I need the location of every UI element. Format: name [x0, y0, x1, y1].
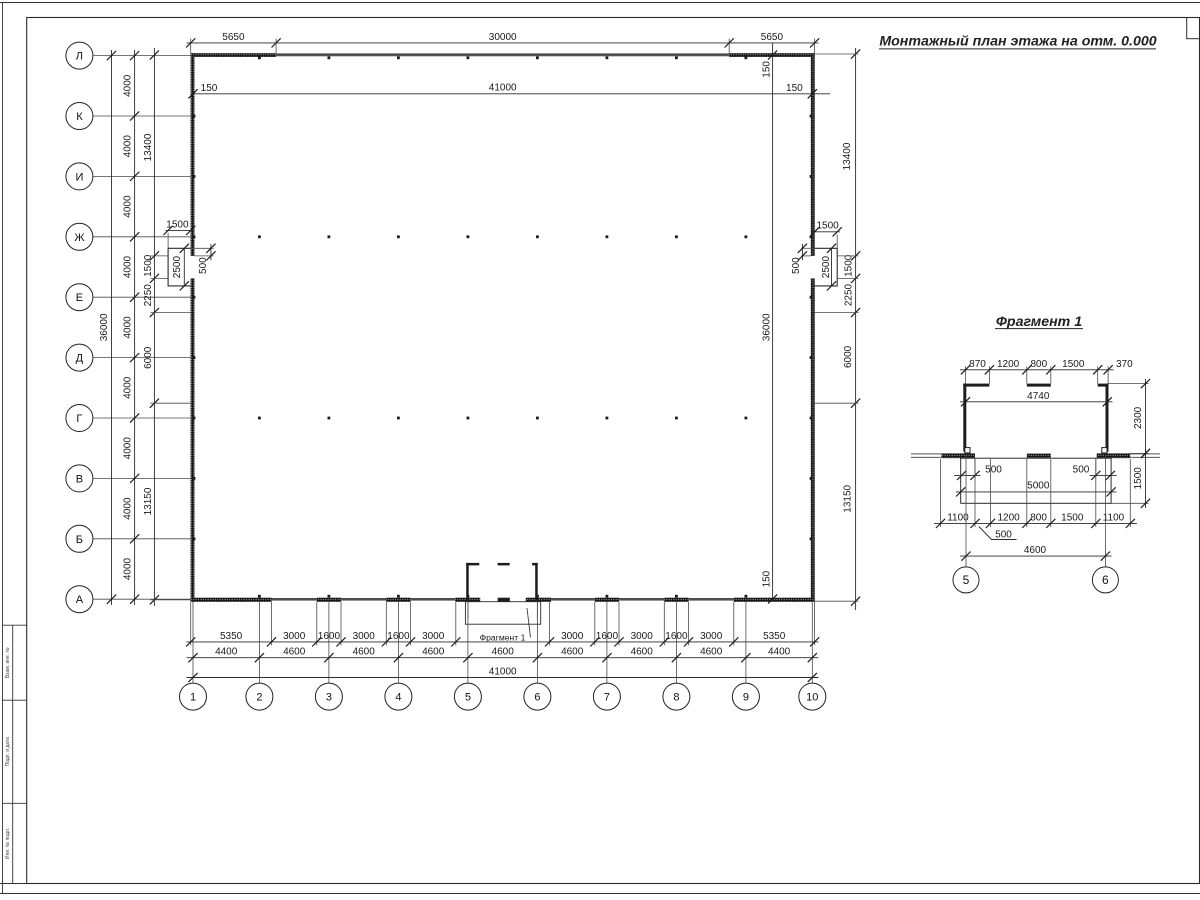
svg-text:2250: 2250: [143, 284, 154, 307]
svg-text:Фрагмент 1: Фрагмент 1: [996, 314, 1082, 330]
svg-text:150: 150: [786, 83, 803, 94]
svg-text:800: 800: [1030, 359, 1047, 370]
svg-text:1500: 1500: [1062, 359, 1085, 370]
svg-text:4600: 4600: [422, 647, 445, 658]
svg-text:1500: 1500: [843, 254, 854, 277]
svg-text:Инв. № подл.: Инв. № подл.: [5, 828, 11, 859]
svg-text:А: А: [76, 594, 84, 606]
svg-text:1600: 1600: [387, 631, 410, 642]
svg-text:4: 4: [395, 692, 401, 704]
svg-text:1500: 1500: [143, 254, 154, 277]
svg-text:150: 150: [201, 83, 218, 94]
svg-text:5350: 5350: [220, 631, 243, 642]
svg-text:4600: 4600: [353, 647, 376, 658]
svg-text:4400: 4400: [768, 647, 791, 658]
svg-text:30000: 30000: [489, 32, 517, 43]
svg-text:3000: 3000: [561, 631, 584, 642]
svg-text:4000: 4000: [123, 497, 134, 520]
svg-text:3000: 3000: [422, 631, 445, 642]
svg-text:4600: 4600: [283, 647, 306, 658]
svg-text:4600: 4600: [631, 647, 654, 658]
svg-text:Ж: Ж: [74, 232, 84, 244]
svg-text:4000: 4000: [123, 135, 134, 158]
svg-text:8: 8: [673, 692, 679, 704]
svg-text:3000: 3000: [631, 631, 654, 642]
svg-text:4400: 4400: [215, 647, 238, 658]
svg-text:2250: 2250: [843, 283, 854, 306]
svg-text:5650: 5650: [761, 32, 784, 43]
svg-text:500: 500: [1073, 464, 1090, 475]
svg-text:6000: 6000: [843, 345, 854, 368]
svg-text:13400: 13400: [842, 142, 853, 170]
svg-text:3000: 3000: [700, 631, 723, 642]
svg-text:41000: 41000: [489, 83, 517, 94]
svg-text:4000: 4000: [123, 437, 134, 460]
svg-text:36000: 36000: [762, 313, 773, 341]
svg-text:4600: 4600: [492, 647, 515, 658]
svg-text:4000: 4000: [123, 74, 134, 97]
svg-text:800: 800: [1030, 512, 1047, 523]
svg-text:3000: 3000: [283, 631, 306, 642]
svg-text:500: 500: [985, 464, 1002, 475]
svg-text:4740: 4740: [1027, 391, 1050, 402]
svg-text:4000: 4000: [123, 376, 134, 399]
svg-text:5350: 5350: [763, 631, 786, 642]
svg-text:4000: 4000: [123, 316, 134, 339]
svg-text:5650: 5650: [222, 32, 245, 43]
svg-text:500: 500: [791, 257, 802, 274]
svg-text:4000: 4000: [123, 255, 134, 278]
svg-text:1600: 1600: [596, 631, 619, 642]
svg-text:В: В: [76, 473, 83, 485]
svg-text:9: 9: [743, 692, 749, 704]
svg-text:150: 150: [761, 61, 772, 78]
svg-text:5: 5: [465, 692, 471, 704]
svg-text:1600: 1600: [318, 631, 341, 642]
svg-text:1200: 1200: [997, 512, 1020, 523]
svg-text:6: 6: [534, 692, 540, 704]
svg-text:2300: 2300: [1133, 406, 1144, 429]
svg-text:6000: 6000: [143, 346, 154, 369]
svg-text:1200: 1200: [997, 359, 1020, 370]
svg-text:Фрагмент 1: Фрагмент 1: [480, 632, 526, 642]
svg-text:2: 2: [256, 692, 262, 704]
svg-text:2500: 2500: [821, 256, 832, 279]
svg-text:2500: 2500: [172, 256, 183, 279]
svg-text:К: К: [76, 111, 83, 123]
svg-text:Е: Е: [76, 292, 83, 304]
svg-text:И: И: [75, 171, 83, 183]
svg-text:5000: 5000: [1027, 481, 1050, 492]
svg-text:1: 1: [190, 692, 196, 704]
svg-text:4600: 4600: [1024, 545, 1047, 556]
svg-text:Подп. и дата: Подп. и дата: [5, 737, 11, 767]
svg-text:41000: 41000: [489, 666, 517, 677]
svg-text:4600: 4600: [561, 647, 584, 658]
svg-text:4000: 4000: [123, 557, 134, 580]
svg-text:10: 10: [806, 692, 818, 704]
svg-text:1500: 1500: [1061, 512, 1084, 523]
svg-text:500: 500: [995, 529, 1012, 540]
svg-text:36000: 36000: [99, 313, 110, 341]
svg-text:1500: 1500: [166, 219, 189, 230]
svg-text:3: 3: [326, 692, 332, 704]
svg-text:5: 5: [963, 573, 970, 587]
svg-text:Монтажный план этажа на отм. 0: Монтажный план этажа на отм. 0.000: [879, 34, 1156, 50]
svg-text:Д: Д: [76, 353, 84, 365]
svg-text:370: 370: [1116, 359, 1133, 370]
svg-text:500: 500: [198, 257, 209, 274]
svg-text:13150: 13150: [143, 487, 154, 515]
svg-text:4600: 4600: [700, 647, 723, 658]
svg-text:13150: 13150: [843, 484, 854, 512]
svg-text:Г: Г: [76, 413, 82, 425]
svg-text:4000: 4000: [123, 195, 134, 218]
svg-text:1500: 1500: [816, 221, 839, 232]
svg-text:150: 150: [761, 570, 772, 587]
svg-text:Б: Б: [76, 534, 83, 546]
svg-text:1600: 1600: [665, 631, 688, 642]
svg-text:870: 870: [969, 359, 986, 370]
svg-text:6: 6: [1102, 573, 1109, 587]
svg-text:13400: 13400: [143, 133, 154, 161]
svg-text:1500: 1500: [1133, 467, 1144, 490]
svg-text:Взам. инв. №: Взам. инв. №: [5, 647, 11, 678]
svg-text:3000: 3000: [353, 631, 376, 642]
svg-text:7: 7: [604, 692, 610, 704]
svg-text:1100: 1100: [1103, 512, 1125, 523]
svg-text:Л: Л: [76, 51, 83, 63]
